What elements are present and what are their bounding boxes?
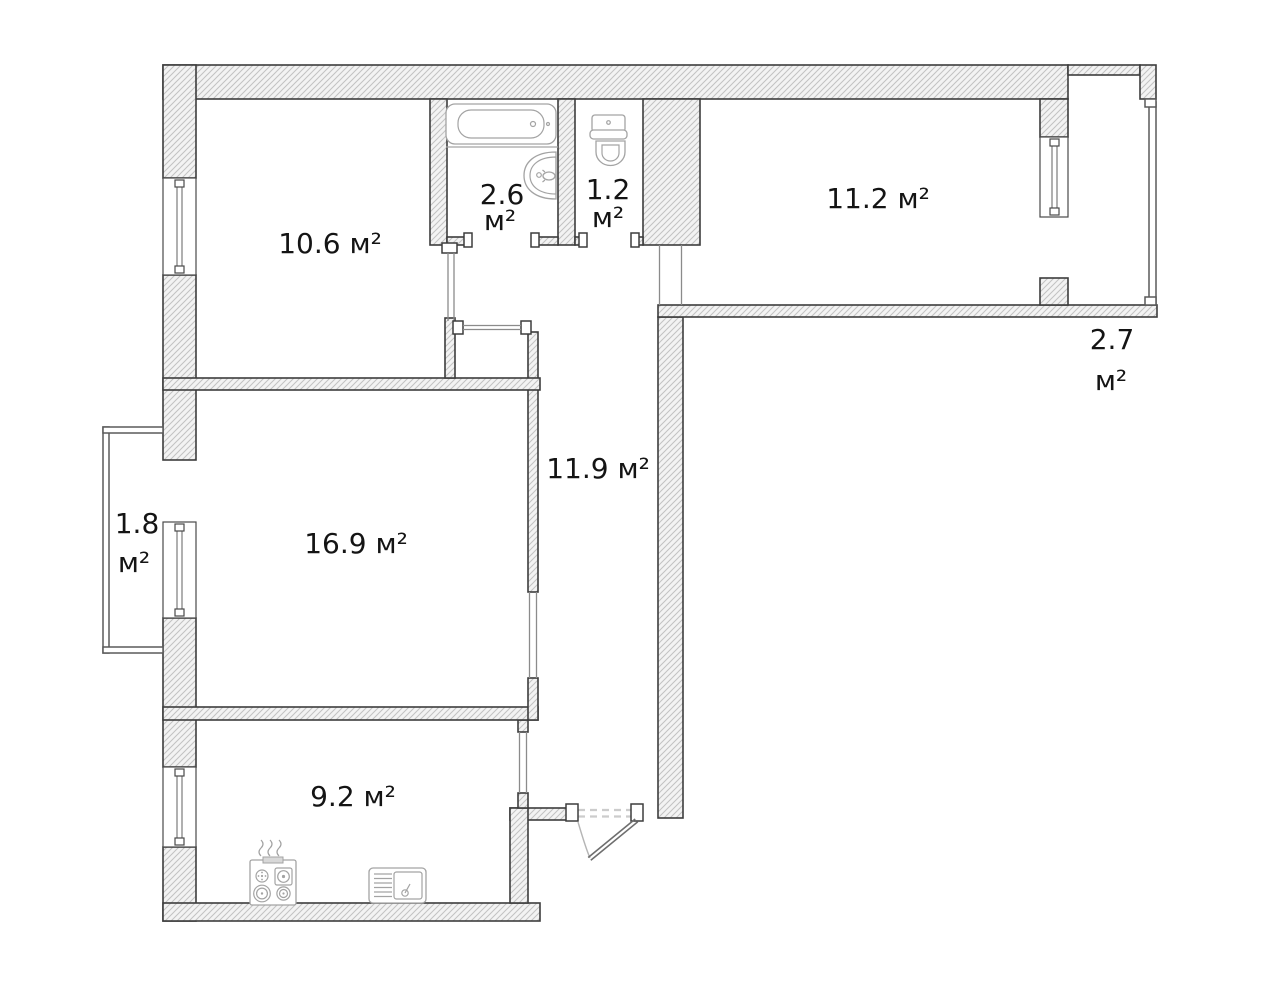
room-label-living-room: 16.9 м² <box>304 527 408 560</box>
room-label-room-top-left: 10.6 м² <box>278 227 382 260</box>
wall-bath-wc-divider <box>558 99 575 245</box>
washbasin-icon <box>524 152 556 199</box>
room-label-room-top-right: 11.2 м² <box>826 182 930 215</box>
door-opening-room-top-left <box>442 243 457 321</box>
room-label-bathroom-unit: м² <box>484 204 516 237</box>
wall-hall-right <box>658 317 683 818</box>
window-living-room <box>163 522 196 618</box>
door-opening-living-room <box>530 592 537 678</box>
wall-room1-right <box>430 99 447 245</box>
window-room-top-right <box>1040 137 1068 217</box>
stove-icon <box>250 840 296 905</box>
wall-bottom-kitchen <box>163 903 540 921</box>
wall-wc-right <box>643 99 700 245</box>
room-label-balcony-left: 1.8 <box>115 507 160 540</box>
wall-room2-balcony-lower <box>1040 278 1068 305</box>
floor-plan-canvas: 10.6 м² 2.6 м² 1.2 м² 11.2 м² 2.7 м² 11.… <box>0 0 1269 993</box>
wall-left-1 <box>163 65 196 178</box>
room-label-balcony-right: 2.7 <box>1090 323 1135 356</box>
toilet-icon <box>590 115 627 166</box>
wall-hall-left-lower <box>528 678 538 720</box>
door-opening-kitchen <box>520 732 527 793</box>
wall-living-kitchen-divider <box>163 707 538 720</box>
opening-room-top-right <box>660 245 682 305</box>
window-kitchen <box>163 767 196 847</box>
wall-top <box>163 65 1068 99</box>
wall-room2-bottom-strip <box>658 305 1157 317</box>
closet-opening <box>453 321 531 334</box>
window-room-top-left <box>163 178 196 275</box>
room-label-hallway: 11.9 м² <box>546 452 650 485</box>
balcony-right-railing <box>1145 99 1156 305</box>
bathtub-icon <box>446 104 558 147</box>
wall-hall-left-upper <box>528 332 538 592</box>
room-label-balcony-right-unit: м² <box>1095 364 1127 397</box>
balcony-left-railing <box>103 427 163 653</box>
wall-entry-corner-v <box>510 808 528 903</box>
entrance-door <box>566 804 643 860</box>
wall-top-right-block <box>1140 65 1156 99</box>
wall-kitchen-right-bottom <box>518 793 528 808</box>
door-opening-toilet <box>579 233 639 247</box>
room-label-toilet-unit: м² <box>592 201 624 234</box>
wall-kitchen-right-top <box>518 720 528 732</box>
kitchen-sink-icon <box>369 868 426 903</box>
wall-room1-bottom <box>163 378 540 390</box>
room-label-kitchen: 9.2 м² <box>310 780 396 813</box>
wall-room2-balcony-upper <box>1040 99 1068 137</box>
room-label-balcony-left-unit: м² <box>118 546 150 579</box>
wall-left-2 <box>163 275 196 460</box>
floor-plan-drawing: 10.6 м² 2.6 м² 1.2 м² 11.2 м² 2.7 м² 11.… <box>0 0 1269 993</box>
wall-left-3 <box>163 618 196 767</box>
wall-top-balcony <box>1068 65 1140 75</box>
